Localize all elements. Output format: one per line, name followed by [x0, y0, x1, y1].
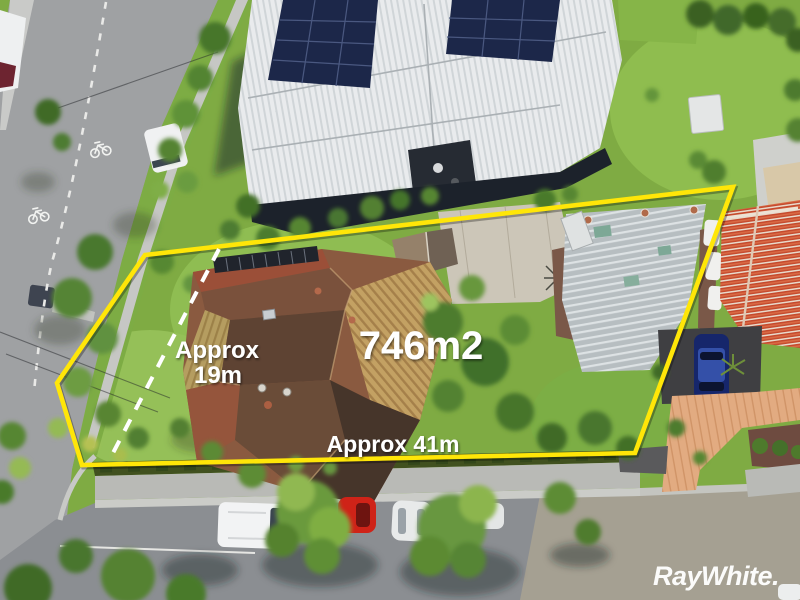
frontage-label: Approx 41m — [327, 431, 460, 457]
area-label: 746m2 — [359, 324, 484, 368]
skylight — [263, 309, 276, 320]
white-car-corner — [778, 584, 800, 600]
parked-car-left — [28, 284, 56, 308]
aerial-photo: Approx 19m 746m2 Approx 41m RayWhite. — [0, 0, 800, 600]
garden-shed — [688, 94, 724, 133]
solar-array-right — [446, 0, 560, 62]
side-dimension-label-line1: Approx — [175, 337, 260, 364]
aerial-photo-canvas: Approx 19m 746m2 Approx 41m RayWhite. — [0, 0, 800, 600]
side-dimension-label-line2: 19m — [194, 362, 242, 389]
agency-logo: RayWhite. — [653, 561, 779, 591]
blue-car — [694, 334, 729, 400]
solar-array-left — [268, 0, 378, 88]
